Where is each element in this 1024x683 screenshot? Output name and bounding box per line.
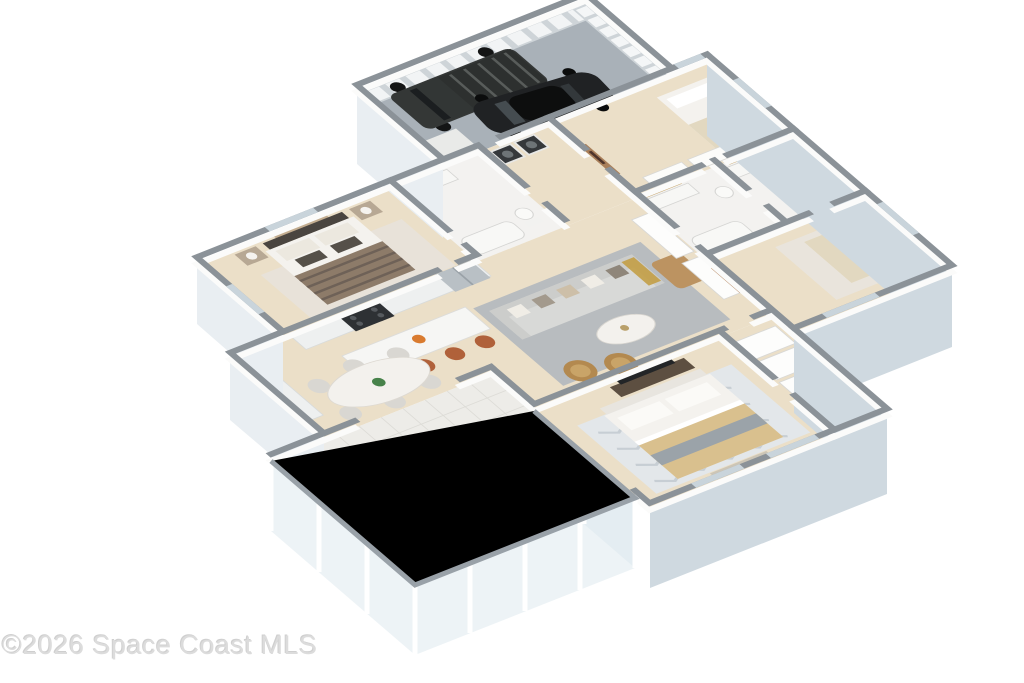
floor-plan-screenshot: { "watermark": { "text": "©2026 Space Co… <box>0 0 1024 683</box>
floorplan-3d-rendering <box>0 0 1024 683</box>
watermark: ©2026 Space Coast MLS <box>2 630 318 661</box>
